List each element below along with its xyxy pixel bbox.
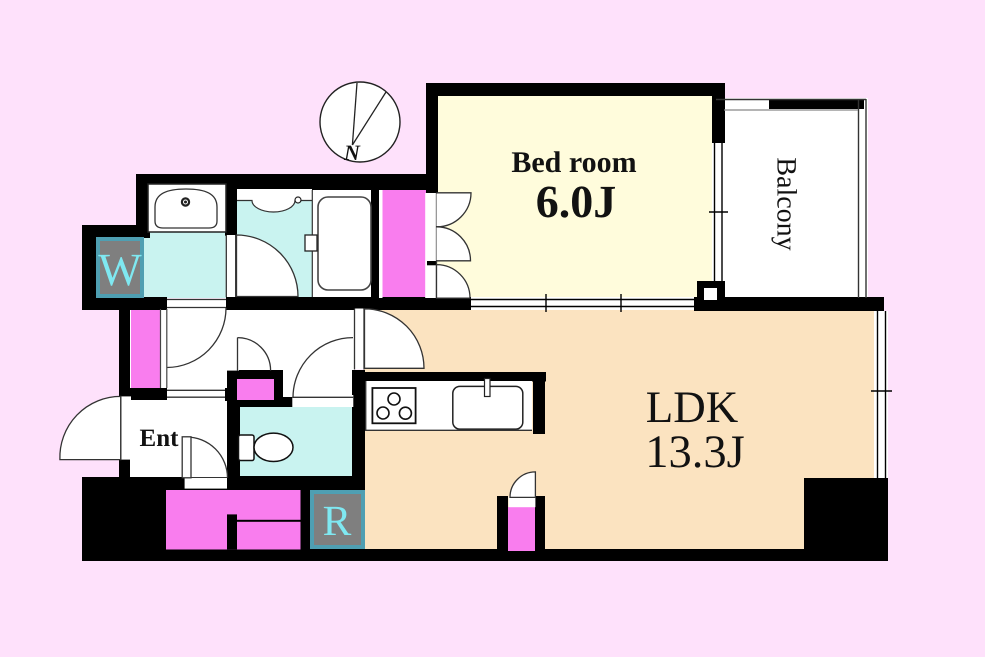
svg-text:N: N <box>343 140 361 165</box>
svg-text:Bed room: Bed room <box>511 146 636 179</box>
svg-text:Balcony: Balcony <box>771 157 802 250</box>
svg-text:R: R <box>323 498 352 545</box>
svg-text:6.0J: 6.0J <box>536 176 617 227</box>
svg-text:LDK: LDK <box>646 382 739 432</box>
svg-text:13.3J: 13.3J <box>645 427 744 478</box>
svg-text:Ent: Ent <box>140 425 180 452</box>
svg-text:W: W <box>98 244 142 295</box>
